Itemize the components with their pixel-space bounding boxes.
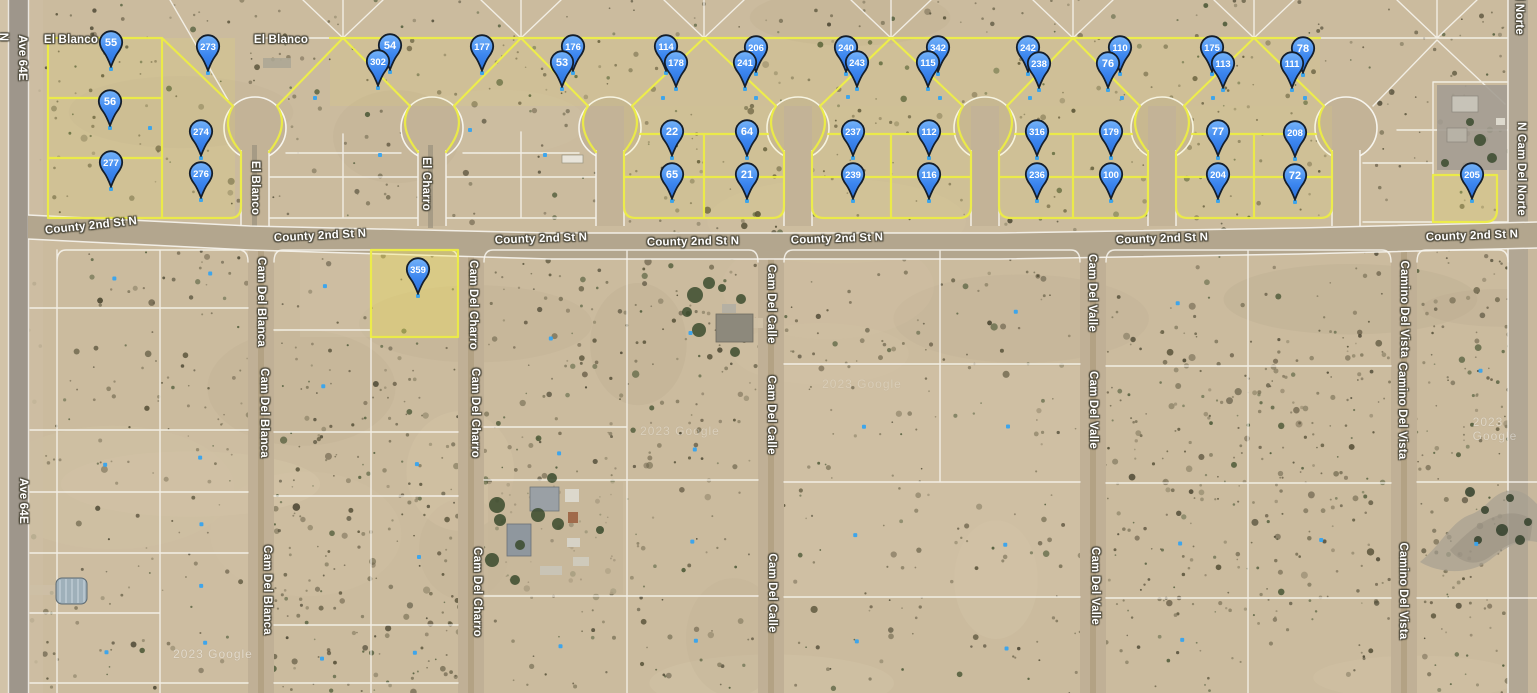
map-pin-76[interactable]: 76 xyxy=(1095,51,1121,89)
satellite-map-view[interactable]: El BlancoEl BlancoCounty 2nd St NCounty … xyxy=(0,0,1537,693)
svg-text:113: 113 xyxy=(1215,59,1230,70)
map-pin-53[interactable]: 53 xyxy=(549,50,575,88)
map-pin-277[interactable]: 277 xyxy=(98,150,124,188)
map-pin-21[interactable]: 21 xyxy=(734,162,760,200)
svg-text:204: 204 xyxy=(1210,170,1227,181)
svg-text:274: 274 xyxy=(193,127,210,138)
map-pin-55[interactable]: 55 xyxy=(98,30,124,68)
svg-text:236: 236 xyxy=(1029,170,1045,181)
svg-text:77: 77 xyxy=(1212,126,1224,138)
svg-text:111: 111 xyxy=(1285,59,1301,70)
map-pin-22[interactable]: 22 xyxy=(659,119,685,157)
svg-text:116: 116 xyxy=(921,170,936,181)
map-pin-239[interactable]: 239 xyxy=(840,162,866,200)
map-pin-65[interactable]: 65 xyxy=(659,162,685,200)
svg-text:237: 237 xyxy=(845,127,861,138)
map-pin-179[interactable]: 179 xyxy=(1098,119,1124,157)
svg-text:22: 22 xyxy=(666,126,678,138)
svg-text:21: 21 xyxy=(741,169,753,181)
map-pin-115[interactable]: 115 xyxy=(915,50,941,88)
svg-text:177: 177 xyxy=(474,42,490,53)
svg-text:277: 277 xyxy=(103,158,119,169)
map-pin-177[interactable]: 177 xyxy=(469,34,495,72)
map-pin-178[interactable]: 178 xyxy=(663,50,689,88)
map-pin-316[interactable]: 316 xyxy=(1024,119,1050,157)
svg-text:53: 53 xyxy=(556,57,568,69)
svg-text:239: 239 xyxy=(845,170,861,181)
map-pin-302[interactable]: 302 xyxy=(365,49,391,87)
map-pin-77[interactable]: 77 xyxy=(1205,119,1231,157)
svg-text:72: 72 xyxy=(1289,170,1301,182)
map-pin-113[interactable]: 113 xyxy=(1210,51,1236,89)
svg-text:55: 55 xyxy=(105,37,117,49)
map-pin-276[interactable]: 276 xyxy=(188,161,214,199)
svg-text:178: 178 xyxy=(668,58,684,69)
map-pin-111[interactable]: 111 xyxy=(1279,51,1305,89)
map-pin-64[interactable]: 64 xyxy=(734,119,760,157)
svg-text:243: 243 xyxy=(849,58,865,69)
map-pin-205[interactable]: 205 xyxy=(1459,162,1485,200)
map-pin-112[interactable]: 112 xyxy=(916,119,942,157)
map-pin-273[interactable]: 273 xyxy=(195,34,221,72)
svg-text:276: 276 xyxy=(193,169,209,180)
map-pin-359[interactable]: 359 xyxy=(405,257,431,295)
svg-text:208: 208 xyxy=(1287,128,1303,139)
map-pin-72[interactable]: 72 xyxy=(1282,163,1308,201)
svg-text:65: 65 xyxy=(666,169,678,181)
map-pin-56[interactable]: 56 xyxy=(97,89,123,127)
svg-text:64: 64 xyxy=(741,126,754,138)
map-pin-274[interactable]: 274 xyxy=(188,119,214,157)
map-pin-238[interactable]: 238 xyxy=(1026,51,1052,89)
svg-text:179: 179 xyxy=(1103,127,1119,138)
svg-text:112: 112 xyxy=(921,127,936,138)
map-imagery xyxy=(0,0,1537,693)
map-pin-208[interactable]: 208 xyxy=(1282,120,1308,158)
map-pin-204[interactable]: 204 xyxy=(1205,162,1231,200)
map-pin-243[interactable]: 243 xyxy=(844,50,870,88)
map-pin-237[interactable]: 237 xyxy=(840,119,866,157)
svg-text:76: 76 xyxy=(1102,58,1114,70)
svg-text:302: 302 xyxy=(370,57,386,68)
svg-text:115: 115 xyxy=(920,58,936,69)
svg-text:316: 316 xyxy=(1029,127,1045,138)
map-pin-100[interactable]: 100 xyxy=(1098,162,1124,200)
svg-text:205: 205 xyxy=(1464,170,1481,181)
map-pin-116[interactable]: 116 xyxy=(916,162,942,200)
svg-text:238: 238 xyxy=(1031,59,1047,70)
svg-text:56: 56 xyxy=(104,96,116,108)
svg-text:241: 241 xyxy=(737,58,754,69)
map-pin-236[interactable]: 236 xyxy=(1024,162,1050,200)
svg-text:359: 359 xyxy=(410,265,426,276)
map-pin-241[interactable]: 241 xyxy=(732,50,758,88)
svg-text:273: 273 xyxy=(200,42,216,53)
svg-text:100: 100 xyxy=(1103,170,1119,181)
